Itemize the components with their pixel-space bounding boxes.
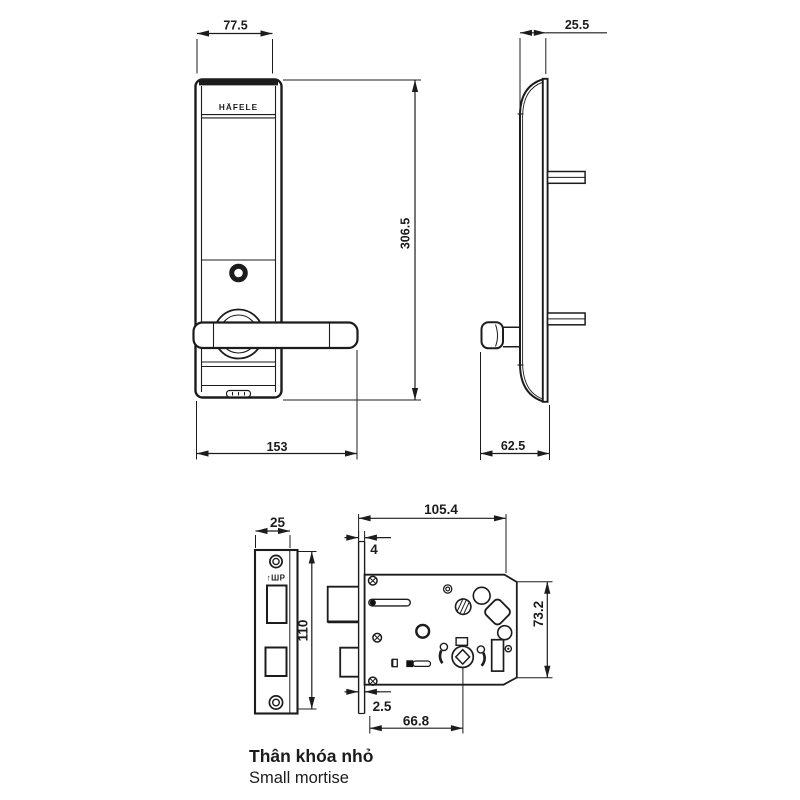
- hub-tab: [456, 638, 467, 646]
- svg-text:153: 153: [267, 440, 288, 454]
- dim-side-total-depth: 62.5: [481, 352, 550, 460]
- brand-logo: HÄFELE: [219, 102, 258, 112]
- svg-text:306.5: 306.5: [399, 218, 413, 249]
- dim-body-height: 73.2: [517, 582, 552, 678]
- svg-text:25: 25: [270, 515, 286, 530]
- lock-body-outline: [196, 80, 282, 398]
- dim-side-depth: 25.5: [520, 18, 607, 110]
- drawing-canvas: HÄFELE 77.5: [0, 0, 800, 800]
- dim-faceplate-thickness: 4: [345, 531, 392, 557]
- drawing-root: HÄFELE 77.5: [194, 18, 608, 787]
- deadbolt-pin: [413, 661, 431, 666]
- handle-side-profile: [482, 322, 504, 348]
- caption-english: Small mortise: [249, 769, 349, 787]
- deadbolt-pin-head: [406, 660, 413, 667]
- svg-text:110: 110: [296, 620, 311, 642]
- svg-text:77.5: 77.5: [223, 19, 247, 33]
- deadbolt-block: [340, 648, 358, 677]
- doorbell-button-icon: [232, 266, 246, 280]
- dim-faceplate-width: 25: [256, 515, 291, 548]
- side-view: [482, 79, 586, 402]
- caption-vietnamese: Thân khóa nhỏ: [249, 746, 373, 766]
- dim-front-width: 77.5: [197, 19, 273, 74]
- svg-text:2.5: 2.5: [373, 699, 392, 714]
- latch-bolt-block: [328, 587, 359, 622]
- svg-text:62.5: 62.5: [501, 439, 525, 453]
- mortise-body-view: [328, 542, 517, 714]
- dim-front-height: 306.5: [283, 80, 421, 400]
- slide-plate: [492, 640, 504, 671]
- lock-dimension-drawing: HÄFELE 77.5: [0, 0, 800, 800]
- svg-text:105.4: 105.4: [424, 502, 458, 517]
- front-view: HÄFELE: [194, 80, 358, 398]
- mounting-plate: [543, 79, 548, 402]
- caption: Thân khóa nhỏ Small mortise: [249, 746, 373, 787]
- faceplate-stamp: ↑ШP: [267, 574, 286, 583]
- faceplate-view: ↑ШP: [255, 550, 298, 714]
- lever-handle: [194, 323, 358, 349]
- svg-text:4: 4: [370, 542, 378, 557]
- dim-faceplate-lip: 2.5: [345, 692, 392, 714]
- svg-text:66.8: 66.8: [403, 714, 430, 729]
- svg-text:25.5: 25.5: [565, 18, 589, 32]
- dim-faceplate-height: 110: [296, 552, 317, 710]
- svg-text:73.2: 73.2: [531, 601, 546, 627]
